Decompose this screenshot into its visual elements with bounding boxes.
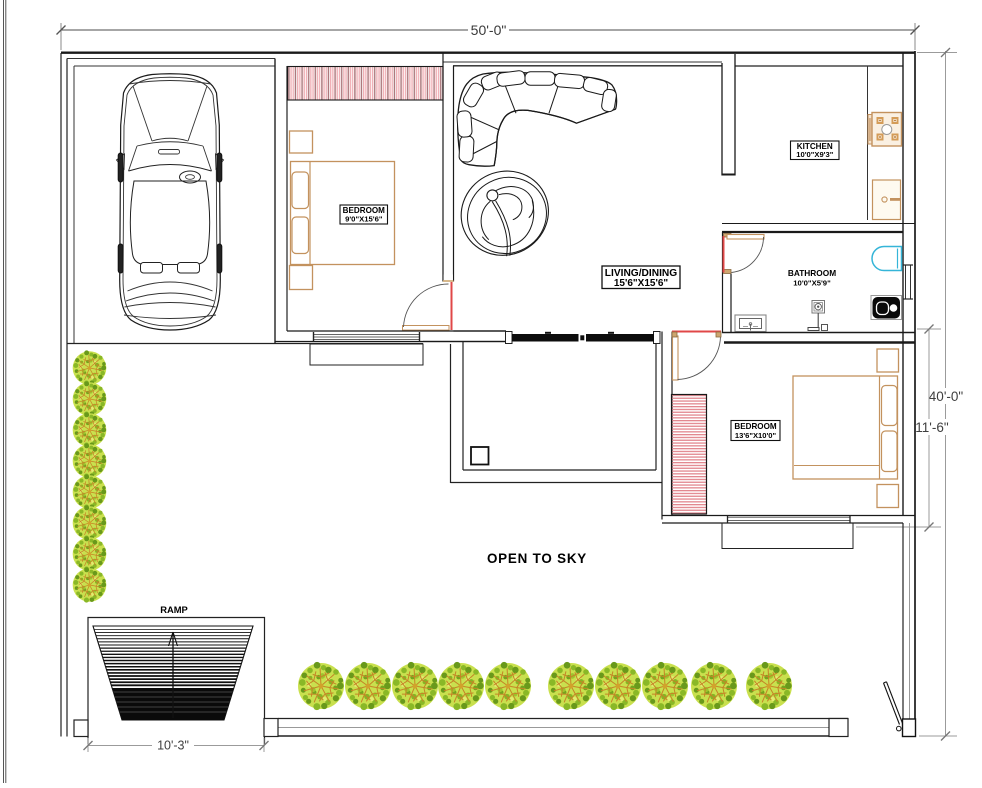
svg-text:OPEN TO SKY: OPEN TO SKY — [487, 551, 587, 566]
svg-text:9'0"X15'6": 9'0"X15'6" — [345, 215, 383, 224]
svg-text:BEDROOM: BEDROOM — [734, 422, 777, 431]
svg-text:40'-0": 40'-0" — [929, 389, 964, 404]
svg-text:13'6"X10'0": 13'6"X10'0" — [735, 431, 777, 440]
svg-text:11'-6": 11'-6" — [915, 420, 949, 435]
svg-text:RAMP: RAMP — [160, 604, 188, 615]
svg-text:10'0"X5'9": 10'0"X5'9" — [793, 279, 831, 288]
svg-text:50'-0": 50'-0" — [471, 22, 507, 38]
svg-text:15'6"X15'6": 15'6"X15'6" — [614, 278, 669, 289]
svg-text:10'-3": 10'-3" — [157, 739, 189, 753]
svg-text:10'0"X9'3": 10'0"X9'3" — [796, 150, 833, 159]
svg-text:BATHROOM: BATHROOM — [788, 268, 836, 278]
